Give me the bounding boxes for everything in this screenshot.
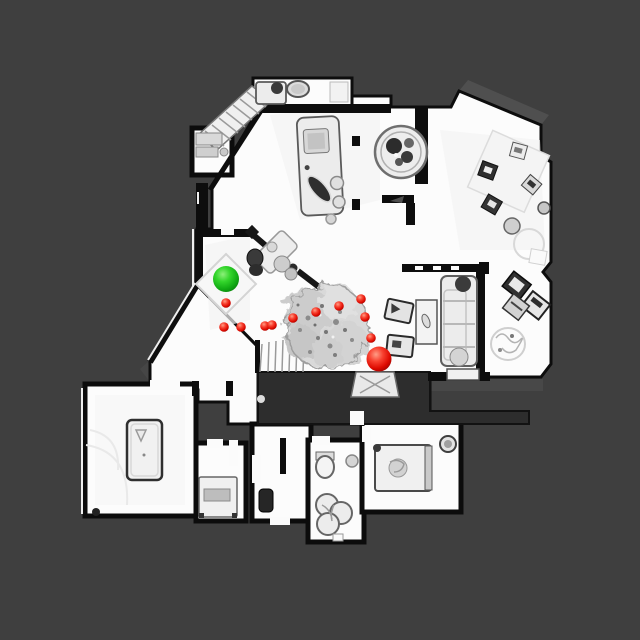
floorplan-canvas — [0, 0, 640, 640]
goal-marker — [367, 347, 392, 372]
bed-large — [373, 444, 432, 491]
wall-boxes — [529, 249, 547, 266]
doorstop — [92, 508, 100, 516]
bed-small — [199, 477, 237, 518]
sofa — [441, 276, 477, 366]
viewport — [0, 0, 640, 640]
waypoint-dot — [267, 320, 277, 330]
bathroom-sink — [346, 455, 358, 467]
waypoint-dot — [366, 333, 376, 343]
basket — [440, 436, 456, 452]
start-marker — [213, 266, 239, 292]
hall-cabinet — [259, 489, 273, 512]
scan-blob — [284, 284, 369, 369]
waypoint-dot — [311, 307, 321, 317]
console-table — [447, 369, 479, 380]
round-table — [375, 126, 427, 178]
pool-table — [127, 420, 162, 480]
toilet — [316, 452, 334, 478]
waypoint-dot — [219, 322, 229, 332]
waypoint-dot — [221, 298, 231, 308]
scribble-rug — [491, 328, 525, 360]
waypoint-dot — [236, 322, 246, 332]
waypoint-dot — [334, 301, 344, 311]
waypoint-dot — [360, 312, 370, 322]
bench — [351, 372, 399, 397]
waypoint-dot — [288, 313, 298, 323]
waypoint-dot — [356, 294, 366, 304]
